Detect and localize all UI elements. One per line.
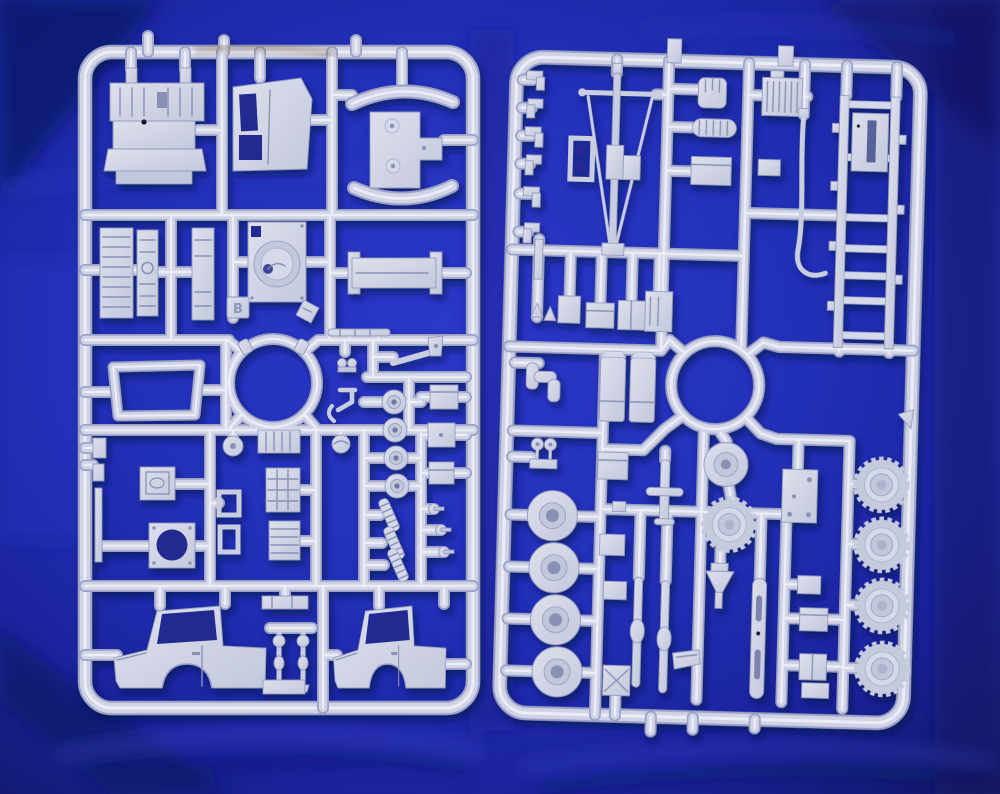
ribbed-muffler [692, 118, 736, 137]
cab-rear-panel [233, 78, 312, 171]
stowage-box-a [691, 156, 732, 185]
equipment-boxes-right [428, 385, 458, 484]
cargo-floor-tray [348, 252, 442, 294]
top-clamp-part [262, 596, 308, 609]
photo-canvas: B [0, 0, 1000, 794]
battery-box [140, 467, 175, 500]
floor-plate [781, 469, 817, 523]
photo-stage: B [0, 0, 1000, 794]
slotted-leaf-spring [749, 578, 766, 698]
fan-housing-panel [248, 222, 306, 302]
clamp-ring [149, 523, 195, 568]
bracket-small [758, 159, 780, 176]
low-ribbed-box [258, 430, 300, 453]
grid-vent-box [266, 468, 300, 512]
spare-wheel-disc [703, 442, 748, 487]
radiator-grille-panels [100, 228, 214, 320]
gauge-part [332, 435, 350, 453]
engine-block [104, 68, 206, 184]
mushroom-part [223, 436, 243, 456]
gate-tab-b: B [227, 297, 249, 318]
detail-rod [328, 329, 390, 336]
radiator-core-plate [851, 113, 889, 172]
ribbed-box [269, 521, 300, 560]
seat-cushion-part [698, 78, 727, 109]
sprue-letter-b: B [233, 302, 243, 317]
